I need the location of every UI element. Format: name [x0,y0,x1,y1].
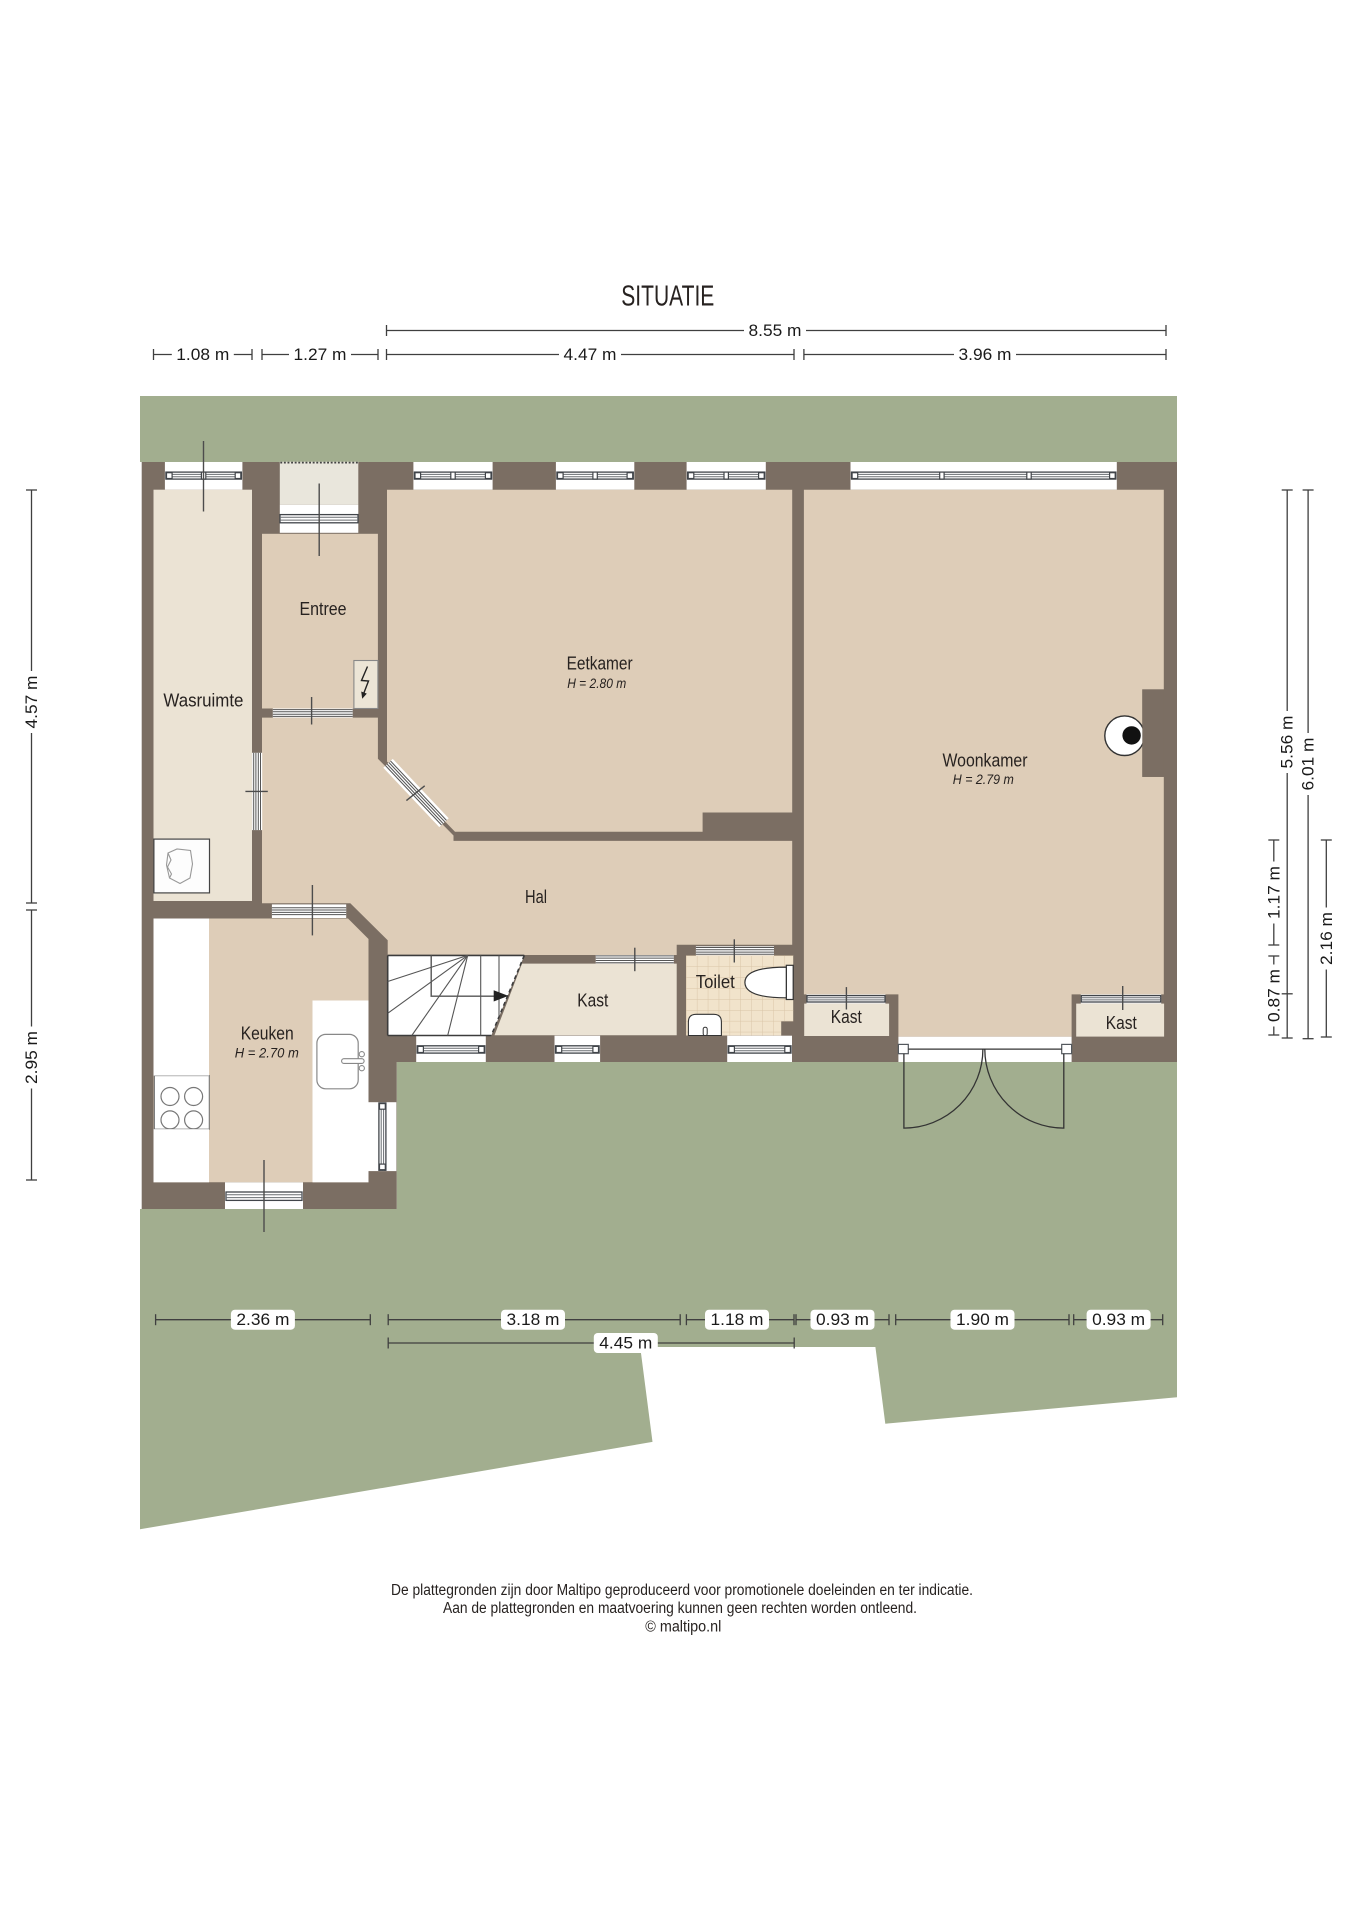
svg-text:0.93 m: 0.93 m [816,1310,869,1329]
svg-text:1.90 m: 1.90 m [956,1310,1009,1329]
svg-text:4.47 m: 4.47 m [564,345,617,364]
svg-text:Wasruimte: Wasruimte [163,691,243,711]
svg-text:1.17 m: 1.17 m [1264,866,1283,919]
svg-text:6.01 m: 6.01 m [1299,738,1318,791]
svg-text:H = 2.70 m: H = 2.70 m [235,1045,299,1060]
svg-text:0.87 m: 0.87 m [1264,969,1283,1022]
svg-text:2.36 m: 2.36 m [236,1310,289,1329]
svg-text:4.45 m: 4.45 m [599,1334,652,1353]
svg-text:De plattegronden zijn door Mal: De plattegronden zijn door Maltipo gepro… [391,1582,973,1599]
svg-text:2.95 m: 2.95 m [22,1031,41,1084]
svg-text:H = 2.80 m: H = 2.80 m [567,676,626,691]
svg-text:5.56 m: 5.56 m [1278,716,1297,769]
svg-text:Woonkamer: Woonkamer [943,750,1028,770]
svg-text:8.55 m: 8.55 m [749,321,802,340]
svg-text:Aan de plattegronden en maatvo: Aan de plattegronden en maatvoering kunn… [443,1600,917,1617]
svg-text:3.18 m: 3.18 m [507,1310,560,1329]
svg-text:Entree: Entree [300,599,347,619]
svg-text:Kast: Kast [831,1007,862,1027]
svg-text:1.08 m: 1.08 m [176,345,229,364]
svg-text:© maltipo.nl: © maltipo.nl [645,1619,721,1636]
svg-text:Hal: Hal [525,887,547,907]
svg-text:SITUATIE: SITUATIE [621,281,714,313]
svg-text:0.93 m: 0.93 m [1092,1310,1145,1329]
svg-text:1.18 m: 1.18 m [711,1310,764,1329]
svg-text:H = 2.79 m: H = 2.79 m [953,772,1014,787]
svg-text:Kast: Kast [577,991,608,1011]
svg-text:4.57 m: 4.57 m [22,676,41,729]
svg-text:3.96 m: 3.96 m [959,345,1012,364]
svg-text:Kast: Kast [1106,1013,1137,1033]
svg-text:Toilet: Toilet [696,972,735,992]
svg-text:1.27 m: 1.27 m [294,345,347,364]
svg-text:Eetkamer: Eetkamer [567,654,633,674]
svg-text:2.16 m: 2.16 m [1317,912,1336,965]
svg-text:Keuken: Keuken [241,1023,294,1043]
